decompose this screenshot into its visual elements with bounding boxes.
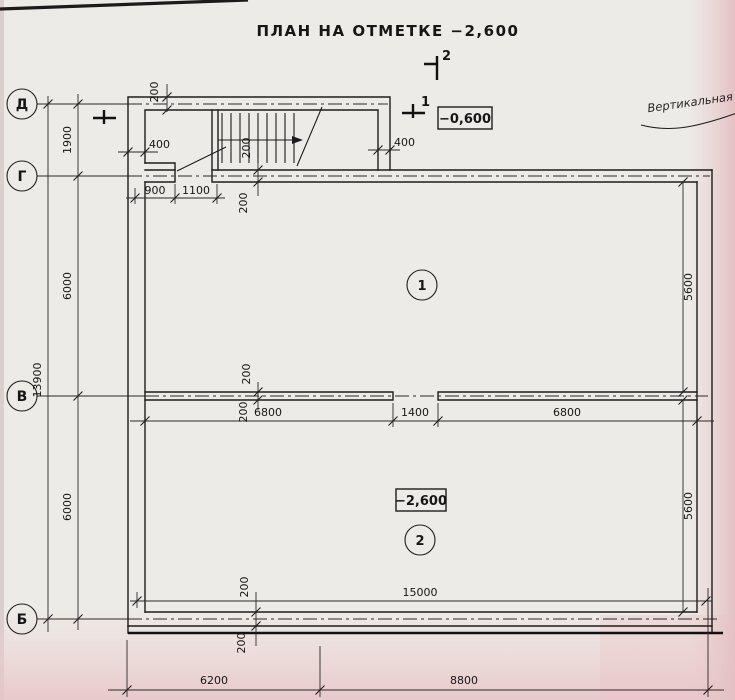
floor-plan-drawing: ПЛАН НА ОТМЕТКЕ −2,600 Вертикальная ги 2… <box>0 0 735 700</box>
dim-200-top: 200 <box>148 82 161 103</box>
room-2-elevation: −2,600 <box>395 494 447 509</box>
dim-400-right: 400 <box>394 136 415 149</box>
axis-label-b: Б <box>17 612 28 628</box>
scan-pink-bottom <box>0 610 735 700</box>
dim-15000-inner: 15000 <box>403 586 438 599</box>
axis-label-v: В <box>17 389 28 405</box>
dim-b200-above: 200 <box>238 577 251 598</box>
dim-v200-above: 200 <box>240 364 253 385</box>
dim-1400: 1400 <box>401 406 429 419</box>
room-2-number: 2 <box>415 534 424 549</box>
dim-5600-lower: 5600 <box>682 492 695 520</box>
dim-6200: 6200 <box>200 674 228 687</box>
room-1-number: 1 <box>417 279 426 294</box>
axis-label-d: Д <box>16 97 28 113</box>
dim-900: 900 <box>145 184 166 197</box>
dim-5600-upper: 5600 <box>682 273 695 301</box>
paper <box>0 0 735 700</box>
dim-g200-above: 200 <box>240 138 253 159</box>
dim-g200-below: 200 <box>237 193 250 214</box>
dim-6000-upper: 6000 <box>61 272 74 300</box>
section-2-label: 2 <box>442 49 451 64</box>
dim-1100: 1100 <box>182 184 210 197</box>
dim-13900: 13900 <box>31 363 44 398</box>
section-1-label: 1 <box>421 95 430 110</box>
dim-6800-right: 6800 <box>553 406 581 419</box>
dim-400-left: 400 <box>149 138 170 151</box>
dim-b200-below: 200 <box>235 633 248 654</box>
dim-8800: 8800 <box>450 674 478 687</box>
dim-v200-below: 200 <box>237 402 250 423</box>
elevation-top-value: −0,600 <box>439 112 491 127</box>
dim-1900: 1900 <box>61 126 74 154</box>
page-title: ПЛАН НА ОТМЕТКЕ −2,600 <box>257 22 520 40</box>
scan-left-edge <box>0 0 4 700</box>
axis-label-g: Г <box>18 169 27 185</box>
title-block: ПЛАН НА ОТМЕТКЕ −2,600 <box>257 22 520 40</box>
dim-6000-lower: 6000 <box>61 493 74 521</box>
paper-background <box>0 0 735 700</box>
